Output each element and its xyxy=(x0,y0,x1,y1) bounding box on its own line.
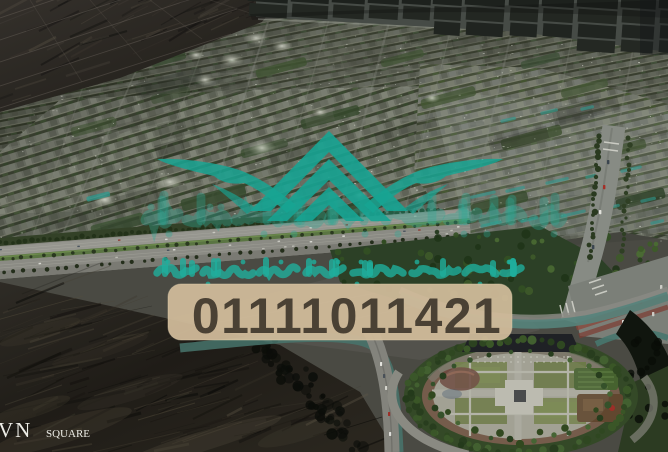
svg-text:SQUARE: SQUARE xyxy=(46,428,90,440)
svg-text:VN: VN xyxy=(0,418,32,442)
svg-text:01111011421: 01111011421 xyxy=(192,288,502,344)
